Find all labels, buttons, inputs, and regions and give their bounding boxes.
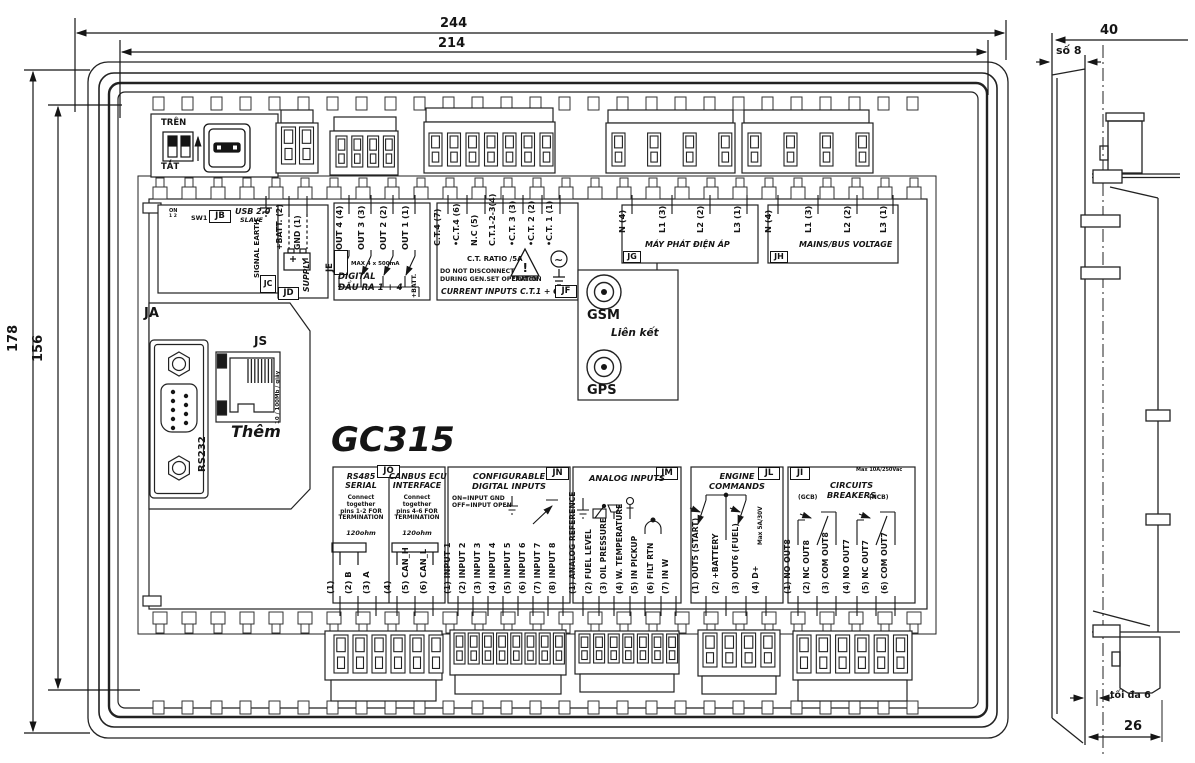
- jo-rs485-note: Connect togetherpins 1-2 FORTERMINATION: [333, 495, 389, 522]
- jh-title: MAINS/BUS VOLTAGE: [799, 240, 892, 249]
- terminal-label: (5) NC OUT7: [861, 540, 871, 594]
- dim-height-inner: 156: [32, 335, 45, 362]
- ji-max-label: Max 10A/250Vac: [856, 467, 902, 473]
- terminal-label: L3 (1): [878, 206, 888, 233]
- ji-ncb-label: (NCB): [869, 494, 888, 501]
- jf-ratio-label: C.T. RATIO /5A: [467, 255, 522, 263]
- je-max-label: MAX 4 x 500mA: [351, 261, 400, 267]
- terminal-label: (4) INPUT 4: [488, 542, 498, 594]
- model-logo: GC315: [331, 420, 455, 460]
- je-batt-label: +BATT.: [410, 274, 420, 298]
- terminal-label: •C.T. 3 (3): [508, 201, 518, 246]
- terminal-label: L1 (3): [803, 206, 813, 233]
- jg-tag: JG: [623, 251, 641, 263]
- je-title1: DIGITAL: [338, 272, 376, 282]
- note-line: pins 1-2 FOR: [333, 509, 389, 516]
- jf-warning1: DO NOT DISCONNECT: [440, 268, 514, 275]
- sw1-label: SW1: [191, 214, 207, 222]
- jl-max-label: Max 5A/30V: [756, 506, 766, 545]
- dim-body: 26: [1124, 719, 1142, 734]
- terminal-label: (4) NO OUT7: [842, 539, 852, 594]
- panel-line-art: ! ~: [0, 0, 1195, 763]
- jf-warning2: DURING GEN.SET OPERATION: [440, 276, 542, 283]
- rj45-connector: [216, 352, 280, 422]
- terminal-label: (1): [325, 581, 335, 594]
- dim-width-inner: 214: [438, 36, 465, 51]
- dim-height-outer: 178: [7, 325, 20, 352]
- jn-note1: ON=INPUT GND: [452, 495, 505, 502]
- terminal-label: •C.T.4 (6): [452, 203, 462, 246]
- ethernet-speed-label: 10 / 100Mb / giây: [273, 371, 283, 424]
- gnd-terminal-label: GND (1): [293, 215, 303, 250]
- ac-tilde: ~: [554, 254, 563, 267]
- ethernet-label: Thêm: [231, 422, 281, 441]
- terminal-label: •C.T. 1 (1): [545, 201, 555, 246]
- jo-can-title1: CANBUS ECU: [389, 472, 445, 481]
- dip-switch: [163, 132, 198, 161]
- terminal-label: C.T.4 (7): [433, 209, 443, 246]
- dip-off-label: TẮT: [161, 162, 179, 172]
- gsm-label: GSM: [587, 308, 620, 323]
- jo-can-title2: INTERFACE: [389, 481, 445, 490]
- terminal-label: L2 (2): [842, 206, 852, 233]
- terminal-label: (6) COM OUT7: [880, 532, 890, 594]
- terminal-label: L1 (3): [657, 206, 667, 233]
- dip-on-label: TRÊN: [161, 118, 186, 128]
- terminal-label: (3) OIL PRESSURE: [599, 518, 609, 594]
- terminal-label: (3) A: [361, 571, 371, 594]
- terminal-label: (6) INPUT 6: [518, 542, 528, 594]
- jn-note2: OFF=INPUT OPEN: [452, 502, 512, 509]
- jo-can-note: Connect togetherpins 4-6 FORTERMINATION: [389, 495, 445, 522]
- sw1-nums: 1 2: [169, 214, 177, 219]
- jo-rs485-title1: RS485: [333, 472, 389, 481]
- terminal-label: (1) ANALOG REFERENCE: [568, 492, 578, 594]
- ji-gcb-label: (GCB): [798, 494, 817, 501]
- terminal-label: (1) INPUT 1: [443, 542, 453, 594]
- jl-title1: ENGINE: [691, 471, 783, 481]
- ji-title1: CIRCUITS: [788, 480, 915, 490]
- rs232-label: RS232: [198, 436, 208, 472]
- terminal-label: (2) INPUT 2: [458, 542, 468, 594]
- terminal-label: (3) COM OUT8: [821, 532, 831, 594]
- terminal-label: •C.T. 2 (2): [527, 201, 537, 246]
- jn-title1: CONFIGURABLE: [448, 471, 570, 481]
- dim-width-outer: 244: [440, 16, 467, 31]
- dim-depth: 40: [1100, 23, 1118, 38]
- jg-title: MÁY PHÁT ĐIỆN ÁP: [645, 240, 730, 249]
- link-label: Liên kết: [611, 327, 659, 339]
- batt-terminal-label: +BATT. (2): [275, 204, 285, 250]
- terminal-label: (2) B: [343, 571, 353, 594]
- terminal-label: (2) FUEL LEVEL: [584, 529, 594, 594]
- note-line: Connect together: [333, 495, 389, 509]
- terminal-label: N.C (5): [470, 215, 480, 246]
- terminal-label: L2 (2): [695, 206, 705, 233]
- terminal-label: OUT 3 (3): [356, 206, 366, 250]
- note-line: TERMINATION: [333, 515, 389, 522]
- gc315-rear-panel-diagram: { "model": "GC315", "dims": { "w_outer":…: [0, 0, 1195, 763]
- jc-tag: JC: [260, 275, 276, 293]
- ja-label: JA: [144, 306, 159, 321]
- terminal-label: (6) CAN_L: [418, 549, 428, 594]
- terminal-label: (5) IN PICKUP: [630, 536, 640, 594]
- terminal-label: (1) NO OUT8: [783, 539, 793, 594]
- terminal-label: (2) NC OUT8: [802, 540, 812, 594]
- note-line: TERMINATION: [389, 515, 445, 522]
- terminal-label: (7) INPUT 7: [533, 542, 543, 594]
- jh-tag: JH: [770, 251, 788, 263]
- jl-title2: COMMANDS: [691, 481, 783, 491]
- jo-rs485-resistor-label: 120ohm: [333, 529, 389, 537]
- terminal-label: (4): [382, 581, 392, 594]
- jf-tag: JF: [555, 285, 577, 298]
- terminal-label: (6) FILT RTN: [646, 543, 656, 594]
- terminal-label: (4) D+: [751, 566, 761, 594]
- note-line: pins 4-6 FOR: [389, 509, 445, 516]
- terminal-label: C.T.1-2-3(4): [488, 194, 498, 246]
- terminal-label: OUT 4 (4): [334, 206, 344, 250]
- je-tag: JE: [325, 263, 335, 272]
- js-label: JS: [254, 334, 267, 348]
- terminal-label: N (4): [617, 210, 627, 233]
- terminal-label: L3 (1): [732, 206, 742, 233]
- terminal-label: (7) IN W: [661, 559, 671, 594]
- je-title2: ĐẦU RA 1 + 4: [338, 283, 403, 293]
- jb-tag: JB: [209, 210, 231, 223]
- jm-title: ANALOG INPUTS: [573, 473, 681, 483]
- caution-excl: !: [523, 261, 528, 275]
- side-view: [1052, 33, 1180, 757]
- terminal-label: (3) INPUT 3: [473, 542, 483, 594]
- terminal-label: (2) +BATTERY: [711, 533, 721, 594]
- terminal-label: (8) INPUT 8: [548, 542, 558, 594]
- jd-tag: JD: [278, 287, 299, 300]
- ji-tag: JI: [790, 467, 810, 480]
- signal-earth-label: SIGNAL EARTH: [252, 219, 262, 278]
- gps-label: GPS: [587, 383, 617, 398]
- terminal-label: (5) CAN_H: [400, 547, 410, 594]
- terminal-label: OUT 1 (1): [400, 206, 410, 250]
- terminal-label: OUT 2 (2): [378, 206, 388, 250]
- db9-connector: [150, 340, 208, 498]
- terminal-label: (4) W. TEMPERATURE: [615, 504, 625, 594]
- jo-can-resistor-label: 120ohm: [389, 529, 445, 537]
- jn-title2: DIGITAL INPUTS: [448, 481, 570, 491]
- terminal-label: (3) OUT6 (FUEL): [731, 523, 741, 594]
- jo-rs485-title2: SERIAL: [333, 481, 389, 490]
- dim-clamp: tối đa 6: [1110, 690, 1151, 701]
- terminal-label: N (4): [763, 210, 773, 233]
- supply-label: SUPPLY: [302, 259, 312, 292]
- usb-label: USB 2.0: [235, 207, 270, 216]
- note-line: Connect together: [389, 495, 445, 509]
- terminal-label: (1) OUT5 (START): [691, 518, 701, 594]
- dim-bezel: số 8: [1056, 44, 1082, 57]
- terminal-label: (5) INPUT 5: [503, 542, 513, 594]
